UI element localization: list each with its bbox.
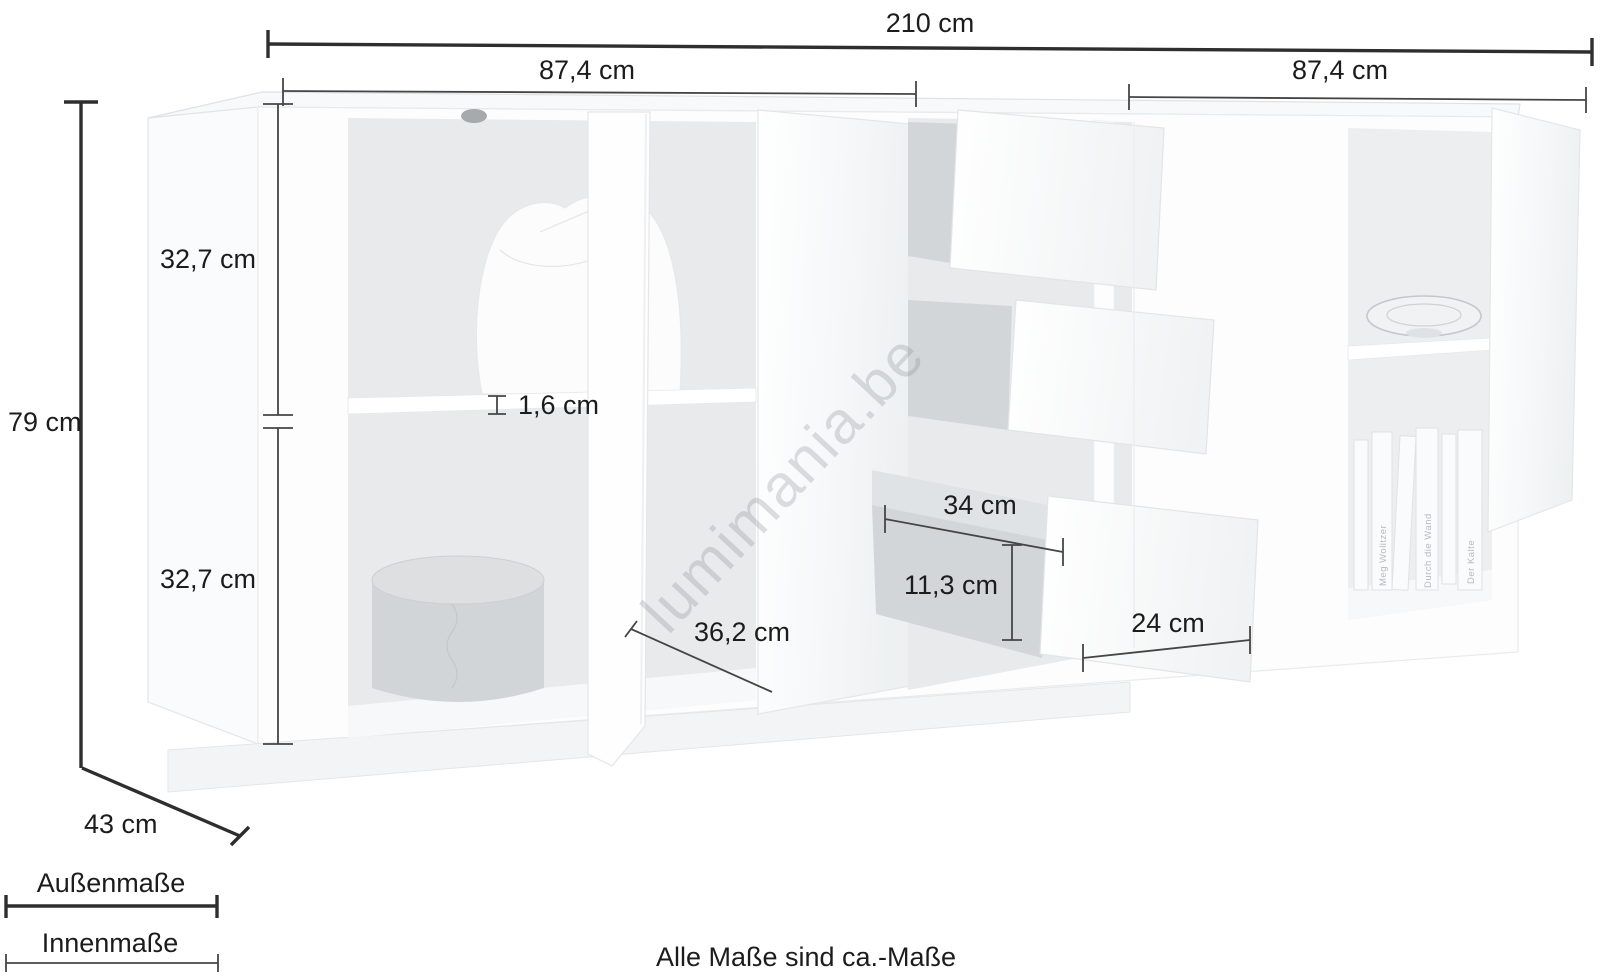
- drawer1-front: [950, 110, 1164, 290]
- dim-line: [268, 44, 1592, 52]
- cable-hole: [461, 109, 487, 123]
- bowl-base: [1406, 328, 1442, 338]
- dim-label-depth: 43 cm: [84, 809, 158, 839]
- dim-label-right-section-width: 87,4 cm: [1292, 55, 1388, 85]
- books: Meg Wolitzer Durch die Wand Der Kalte: [1354, 428, 1482, 590]
- legend-inner-measure: Innenmaße: [6, 928, 218, 972]
- dim-line: [1129, 97, 1586, 100]
- legend: Außenmaße Innenmaße: [6, 868, 218, 972]
- legend-outer-measure: Außenmaße: [6, 868, 217, 918]
- product-dimension-diagram: Meg Wolitzer Durch die Wand Der Kalte lu…: [0, 0, 1600, 977]
- diagram-canvas: Meg Wolitzer Durch die Wand Der Kalte lu…: [0, 0, 1600, 977]
- dim-label-total-width: 210 cm: [886, 8, 975, 38]
- open-door-right: [1488, 108, 1580, 532]
- dim-label-left-section-width: 87,4 cm: [539, 55, 635, 85]
- footnote-text: Alle Maße sind ca.-Maße: [656, 942, 956, 972]
- drawer2-front: [1008, 300, 1214, 454]
- book-spine: [1442, 434, 1456, 584]
- legend-inner-label: Innenmaße: [42, 928, 179, 958]
- paper-bag: [476, 195, 681, 394]
- dim-height: 79 cm: [8, 102, 98, 768]
- left-side-panel: [148, 107, 258, 744]
- book-title: Der Kalte: [1466, 540, 1477, 584]
- book-spine: [1354, 440, 1368, 590]
- dim-tick: [231, 827, 249, 845]
- dim-label-lower-compartment: 32,7 cm: [160, 564, 256, 594]
- dim-label-drawer-depth: 34 cm: [943, 490, 1017, 520]
- dim-label-shelf-thickness: 1,6 cm: [518, 390, 599, 420]
- hat-box: [372, 556, 544, 702]
- dim-label-drawer-width: 24 cm: [1131, 608, 1205, 638]
- drawer3-front: [1040, 496, 1258, 682]
- hat-box-lid: [372, 556, 544, 604]
- dim-total-width: 210 cm: [268, 8, 1592, 66]
- dim-label-upper-compartment: 32,7 cm: [160, 244, 256, 274]
- book-title: Durch die Wand: [1423, 513, 1434, 588]
- dim-label-door-width: 36,2 cm: [694, 617, 790, 647]
- book-title: Meg Wolitzer: [1378, 525, 1389, 586]
- dim-label-height: 79 cm: [8, 407, 82, 437]
- open-door-left: [588, 112, 650, 766]
- legend-outer-label: Außenmaße: [37, 868, 186, 898]
- dim-label-drawer-height: 11,3 cm: [904, 570, 998, 600]
